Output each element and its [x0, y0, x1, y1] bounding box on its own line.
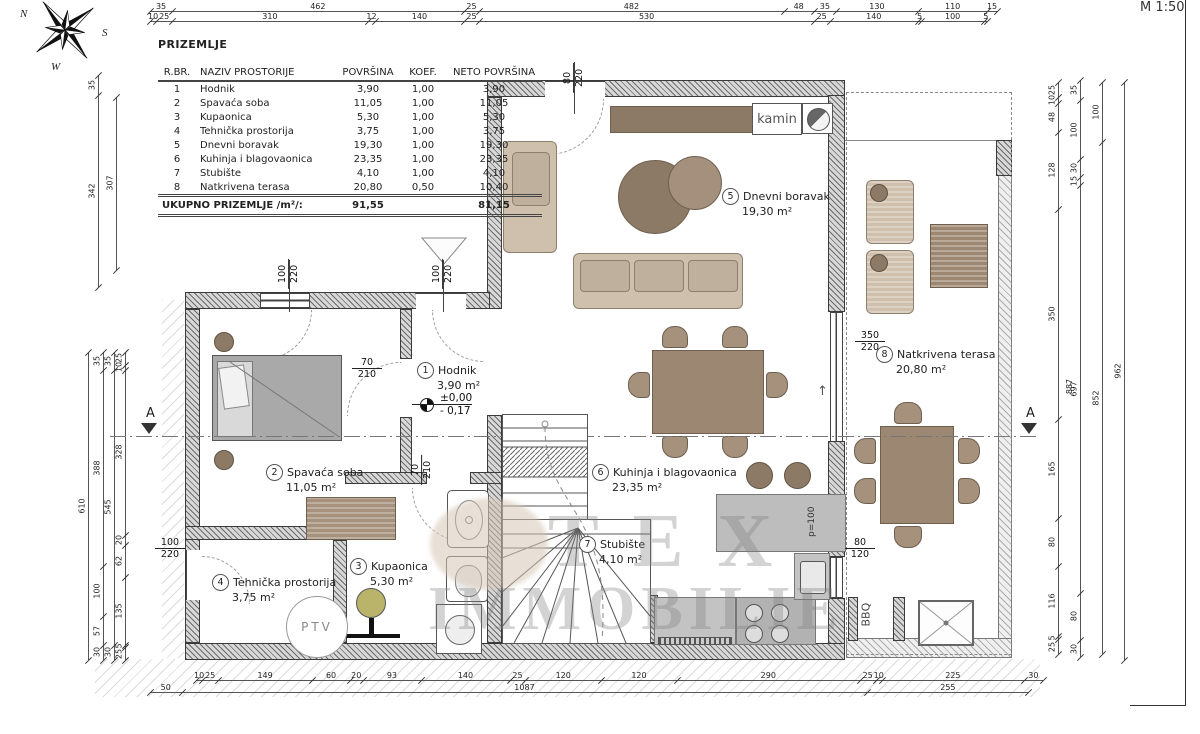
room-label-3: 3Kupaonica5,30 m² [350, 558, 428, 588]
section-label-left: A [146, 406, 155, 421]
dim-line [1080, 80, 1081, 657]
dim-label: 10 [194, 671, 204, 680]
dim-label: 25 [466, 12, 476, 21]
dim-label: 10 [1048, 95, 1057, 105]
table-cell: 8 [158, 180, 196, 196]
table-header: KOEF. [400, 65, 446, 81]
door-gap-hall-entrance [416, 293, 466, 309]
table-cell: Hodnik [196, 81, 336, 96]
dim-label: 25 [1048, 84, 1057, 94]
level-value: ±0,00 - 0,17 [440, 392, 472, 417]
washing-machine [436, 604, 482, 654]
section-line [110, 436, 1040, 437]
dining-chair [628, 372, 650, 398]
room-number: 7 [579, 536, 596, 553]
table-cell: 1,00 [400, 138, 446, 152]
sofa [573, 253, 743, 309]
dim-label: 1087 [514, 683, 534, 692]
table-header: NETO POVRŠINA [446, 65, 542, 81]
dim-label: 20 [351, 671, 361, 680]
compass-n-label: N [20, 8, 27, 20]
table-row: 3Kupaonica5,301,005,30 [158, 110, 542, 124]
dim-label: 5 [1048, 635, 1057, 640]
dim-label: 48 [794, 2, 804, 11]
dim-line [1102, 82, 1103, 654]
opening-height: 210 [423, 461, 434, 479]
wall-bottom [185, 643, 845, 660]
dim-label: 100 [93, 583, 102, 598]
dim-label: 328 [115, 445, 124, 460]
dim-tick [95, 284, 102, 291]
room-label-7: 7Stubište4,10 m² [579, 536, 645, 566]
room-area: 23,35 m² [612, 481, 737, 494]
room-number: 8 [876, 346, 893, 363]
table-row: 2Spavaća soba11,051,0011,05 [158, 96, 542, 110]
table-row: 4Tehnička prostorija3,751,003,75 [158, 124, 542, 138]
dim-label: 93 [387, 671, 397, 680]
table-cell: 3,75 [336, 124, 400, 138]
dim-label: 35 [93, 356, 102, 366]
room-label-5: 5Dnevni boravak19,30 m² [722, 188, 830, 218]
kamin-label: kamin [757, 112, 797, 127]
room-number: 6 [592, 464, 609, 481]
table-cell: 1,00 [400, 96, 446, 110]
opening-height: 220 [290, 265, 301, 283]
table-cell: 1,00 [400, 124, 446, 138]
dim-label: 100 [1070, 122, 1079, 137]
table-cell: Spavaća soba [196, 96, 336, 110]
sheet-border-right [1185, 0, 1186, 706]
dim-label: 30 [104, 647, 113, 657]
dim-label: 80 [1070, 611, 1079, 621]
opening-label-win-bedroom: 100220 [277, 259, 301, 289]
opening-label-door-living-top: 80220 [562, 63, 586, 93]
dim-label: 25 [512, 671, 522, 680]
floorplan-sheet: M 1:50 N S W PRIZEMLJE R.BR.NAZIV PROSTO… [0, 0, 1200, 734]
level-marker-icon [420, 398, 434, 412]
table-cell: 1,00 [400, 110, 446, 124]
table-cell: 5,30 [336, 110, 400, 124]
table-cell: Kuhinja i blagovaonica [196, 152, 336, 166]
dim-label: 149 [257, 671, 272, 680]
kitchen-island [716, 494, 846, 552]
table-title: PRIZEMLJE [158, 38, 542, 51]
nightstand [214, 332, 234, 352]
ptv-label: PTV [301, 620, 333, 634]
dim-label: 62 [115, 556, 124, 566]
room-label-4: 4Tehnička prostorija3,75 m² [212, 574, 336, 604]
dim-label: 25 [115, 649, 124, 659]
room-name: Dnevni boravak [743, 190, 830, 203]
opening-width: 80 [562, 63, 574, 93]
bar-stool [746, 462, 773, 489]
dim-label: 25 [205, 671, 215, 680]
dim-label: 25 [1048, 642, 1057, 652]
ptv-boiler: PTV [286, 596, 348, 658]
sideboard [610, 106, 754, 133]
dim-label: 130 [869, 2, 884, 11]
table-cell: 3,90 [446, 81, 542, 96]
dining-chair [766, 372, 788, 398]
compass-w-label: W [51, 61, 60, 73]
level-marker-line [412, 404, 442, 405]
dim-label: 60 [326, 671, 336, 680]
table-cell: 1,00 [400, 152, 446, 166]
dim-label: 225 [945, 671, 960, 680]
room-area: 19,30 m² [742, 205, 830, 218]
dim-label: 30 [1028, 671, 1038, 680]
total-povrsina: 91,55 [336, 196, 400, 216]
dim-tick [1099, 651, 1106, 658]
room-name: Kuhinja i blagovaonica [613, 466, 737, 479]
room-name: Hodnik [438, 364, 476, 377]
door-gap-tech [186, 550, 200, 600]
dim-label: 20 [115, 535, 124, 545]
dim-label: 545 [104, 500, 113, 515]
table-cell: 4,10 [446, 166, 542, 180]
table-header-row: R.BR.NAZIV PROSTORIJEPOVRŠINAKOEF.NETO P… [158, 65, 542, 81]
table-cell: 19,30 [446, 138, 542, 152]
table-row: 6Kuhinja i blagovaonica23,351,0023,35 [158, 152, 542, 166]
room-label-6: 6Kuhinja i blagovaonica23,35 m² [592, 464, 737, 494]
level-top: ±0,00 [440, 392, 472, 405]
table-cell: 2 [158, 96, 196, 110]
table-row: 8Natkrivena terasa20,800,5010,40 [158, 180, 542, 196]
room-name: Kupaonica [371, 560, 428, 573]
watermark-blob [430, 498, 548, 590]
dining-chair [662, 436, 688, 458]
opening-height: 220 [161, 549, 179, 560]
table-row: 5Dnevni boravak19,301,0019,30 [158, 138, 542, 152]
opening-height: 120 [851, 549, 869, 560]
room-number: 4 [212, 574, 229, 591]
table-cell: 6 [158, 152, 196, 166]
window-terrace-door [830, 312, 843, 442]
room-area: 4,10 m² [599, 553, 645, 566]
room-label-1: 1Hodnik3,90 m² [417, 362, 480, 392]
dim-label: 140 [458, 671, 473, 680]
room-number: 5 [722, 188, 739, 205]
dim-label: 35 [88, 80, 97, 90]
room-area: 3,90 m² [437, 379, 480, 392]
dim-label: 10 [148, 12, 158, 21]
room-name: Spavaća soba [287, 466, 363, 479]
opening-width: 100 [155, 537, 185, 549]
dim-label: 50 [161, 683, 171, 692]
dim-label: 30 [93, 647, 102, 657]
opening-label-win-kitchen: 80120 [845, 537, 875, 561]
opening-width: 100 [277, 259, 289, 289]
dim-line [88, 352, 89, 660]
table-cell: 0,50 [400, 180, 446, 196]
dim-label: 140 [412, 12, 427, 21]
section-arrow-left [141, 423, 157, 434]
wall-bed-hall-1 [400, 309, 412, 359]
table-cell: 20,80 [336, 180, 400, 196]
table-cell: 23,35 [336, 152, 400, 166]
dim-label: 48 [1048, 112, 1057, 122]
opening-height: 220 [444, 265, 455, 283]
pedestal-sink [356, 588, 386, 618]
compass-s-label: S [102, 27, 108, 39]
table-cell: 19,30 [336, 138, 400, 152]
table-cell: 4 [158, 124, 196, 138]
dim-label: 110 [945, 2, 960, 11]
table-cell: 1,00 [400, 166, 446, 180]
wardrobe [306, 497, 396, 540]
table-cell: 5 [158, 138, 196, 152]
stove [736, 597, 816, 645]
dim-line [98, 75, 99, 287]
dim-label: 35 [156, 2, 166, 11]
dining-chair [722, 436, 748, 458]
dim-label: 165 [1048, 461, 1057, 476]
opening-label-door-bathroom: 70210 [410, 455, 434, 485]
dim-label: 30 [1070, 163, 1079, 173]
section-label-right: A [1026, 406, 1035, 421]
room-name: Natkrivena terasa [897, 348, 996, 361]
dim-label: 10 [874, 671, 884, 680]
section-arrow-right [1021, 423, 1037, 434]
dim-label: 462 [310, 2, 325, 11]
opening-label-win-hall: 100220 [431, 259, 455, 289]
dim-line [196, 680, 1043, 681]
dim-label: 140 [866, 12, 881, 21]
dim-label: 100 [945, 12, 960, 21]
room-number: 3 [350, 558, 367, 575]
scale-label: M 1:50 [1140, 0, 1185, 15]
table-cell: 3 [158, 110, 196, 124]
dim-tick [85, 657, 92, 664]
opening-height: 210 [358, 369, 376, 380]
table-cell: Natkrivena terasa [196, 180, 336, 196]
dim-label: 12 [366, 12, 376, 21]
dim-label: 5 [983, 12, 988, 21]
table-cell: Dnevni boravak [196, 138, 336, 152]
p100-label: p=100 [807, 497, 817, 537]
room-name: Tehnička prostorija [233, 576, 336, 589]
dim-label: 135 [115, 603, 124, 618]
dim-label: 530 [639, 12, 654, 21]
dim-label: 25 [863, 671, 873, 680]
dim-label: 35 [1070, 85, 1079, 95]
table-cell: 3,75 [446, 124, 542, 138]
dim-label: 35 [820, 2, 830, 11]
dim-label: 128 [1048, 163, 1057, 178]
room-area: 11,05 m² [286, 481, 363, 494]
dining-chair [722, 326, 748, 348]
dim-label: 307 [106, 176, 115, 191]
table-cell: 5,30 [446, 110, 542, 124]
opening-width: 70 [352, 357, 382, 369]
fireplace-label-box: kamin [752, 103, 802, 135]
table-header: R.BR. [158, 65, 196, 81]
table-header: POVRŠINA [336, 65, 400, 81]
dim-label: 10 [115, 362, 124, 372]
table-cell: 10,40 [446, 180, 542, 196]
dim-label: 290 [761, 671, 776, 680]
room-number: 1 [417, 362, 434, 379]
door-swing-arrow: ↑ [817, 384, 828, 399]
opening-width: 80 [845, 537, 875, 549]
room-name: Stubište [600, 538, 645, 551]
table-header: NAZIV PROSTORIJE [196, 65, 336, 81]
terrain-hatch-left [162, 300, 184, 658]
room-schedule: PRIZEMLJE R.BR.NAZIV PROSTORIJEPOVRŠINAK… [158, 38, 542, 217]
dining-chair [662, 326, 688, 348]
room-area: 20,80 m² [896, 363, 996, 376]
coffee-table-small [668, 156, 722, 210]
nightstand [214, 450, 234, 470]
total-neto: 81,15 [446, 196, 542, 216]
dim-label: 482 [624, 2, 639, 11]
dim-label: 388 [93, 460, 102, 475]
dim-label: 25 [159, 12, 169, 21]
dim-tick [1077, 654, 1084, 661]
opening-width: 100 [431, 259, 443, 289]
table-cell: 4,10 [336, 166, 400, 180]
opening-height: 220 [575, 69, 586, 87]
sink-counter [794, 553, 830, 600]
room-table: R.BR.NAZIV PROSTORIJEPOVRŠINAKOEF.NETO P… [158, 65, 542, 217]
dim-label: 255 [940, 683, 955, 692]
dim-label: 962 [1114, 363, 1123, 378]
bed [212, 355, 342, 441]
dim-label: 57 [93, 625, 102, 635]
room-label-2: 2Spavaća soba11,05 m² [266, 464, 363, 494]
table-cell: 1 [158, 81, 196, 96]
dim-line [150, 692, 1028, 693]
table-cell: Kupaonica [196, 110, 336, 124]
dim-label: 80 [1048, 537, 1057, 547]
dim-label: 30 [1070, 644, 1079, 654]
dim-label: 610 [78, 498, 87, 513]
dim-label: 35 [104, 356, 113, 366]
dim-label: 15 [987, 2, 997, 11]
window-kitchen [830, 557, 843, 598]
dim-tick [1121, 657, 1128, 664]
door-arc-bedroom-window [262, 310, 312, 360]
dim-tick [1040, 677, 1047, 684]
dim-label: 100 [1092, 104, 1101, 119]
opening-width: 350 [855, 330, 885, 342]
dim-label: 852 [1092, 390, 1101, 405]
sheet-border-bottom [1130, 705, 1186, 706]
dim-tick [1055, 651, 1062, 658]
table-cell: 3,90 [336, 81, 400, 96]
dim-label: 25 [817, 12, 827, 21]
table-row: 7Stubište4,101,004,10 [158, 166, 542, 180]
bar-stool [784, 462, 811, 489]
level-bottom: - 0,17 [440, 405, 472, 417]
table-cell: Tehnička prostorija [196, 124, 336, 138]
table-cell: 11,05 [446, 96, 542, 110]
opening-label-door-bedroom: 70210 [352, 357, 382, 381]
dim-label: 5 [917, 12, 922, 21]
opening-label-door-tech: 100220 [155, 537, 185, 561]
dim-label: 25 [466, 2, 476, 11]
dim-line [125, 352, 126, 660]
dim-line [116, 97, 117, 270]
table-row: 1Hodnik3,901,003,90 [158, 81, 542, 96]
dim-label: 342 [88, 183, 97, 198]
table-cell: 1,00 [400, 81, 446, 96]
dim-line [1058, 82, 1059, 654]
dim-label: 120 [631, 671, 646, 680]
dim-label: 120 [556, 671, 571, 680]
table-cell: 23,35 [446, 152, 542, 166]
table-cell: 11,05 [336, 96, 400, 110]
bbq-label: BBQ [860, 587, 873, 627]
room-number: 2 [266, 464, 283, 481]
wall-bath-top-2 [470, 472, 502, 484]
opening-width: 70 [410, 455, 422, 485]
room-area: 3,75 m² [232, 591, 336, 604]
dim-label: 310 [262, 12, 277, 21]
dim-line [1124, 82, 1125, 660]
table-cell: 7 [158, 166, 196, 180]
fireplace-icon [802, 103, 833, 134]
dining-table [652, 350, 764, 434]
door-arc-hall-entrance [432, 310, 484, 362]
dim-label: 116 [1048, 594, 1057, 609]
table-total-row: UKUPNO PRIZEMLJE /m²/: 91,55 81,15 [158, 196, 542, 216]
pedestal-base [344, 634, 400, 638]
table-cell: Stubište [196, 166, 336, 180]
pedestal-stem [369, 618, 374, 634]
dim-label: 350 [1048, 306, 1057, 321]
room-label-8: 8Natkrivena terasa20,80 m² [876, 346, 996, 376]
dim-line [150, 21, 987, 22]
kitchen-grille [658, 637, 732, 645]
window-bedroom [260, 293, 310, 308]
total-label: UKUPNO PRIZEMLJE /m²/: [158, 196, 336, 216]
dim-label: 697 [1070, 382, 1079, 397]
room-area: 5,30 m² [370, 575, 428, 588]
dim-label: 15 [1070, 176, 1079, 186]
